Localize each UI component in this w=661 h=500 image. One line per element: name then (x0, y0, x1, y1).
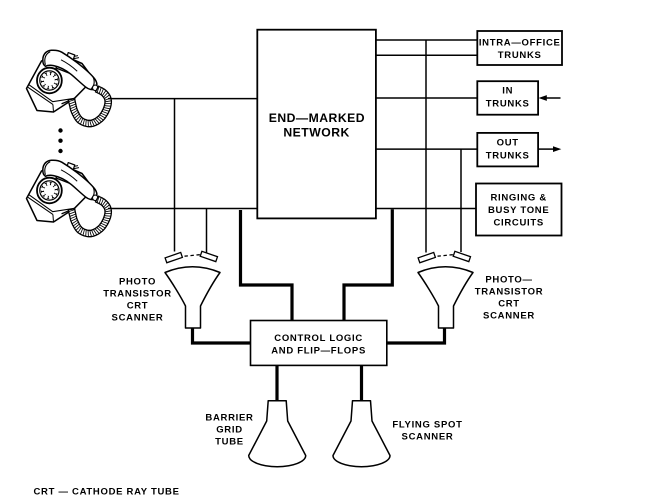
svg-text:CRT: CRT (127, 300, 149, 311)
svg-text:IN: IN (502, 85, 513, 96)
svg-text:PHOTO: PHOTO (119, 276, 156, 287)
svg-text:OUT: OUT (497, 137, 519, 148)
svg-text:GRID: GRID (216, 424, 243, 435)
svg-text:TRUNKS: TRUNKS (486, 98, 530, 109)
svg-text:FLYING SPOT: FLYING SPOT (392, 419, 462, 430)
svg-text:PHOTO—: PHOTO— (485, 274, 532, 285)
svg-text:TRUNKS: TRUNKS (498, 50, 542, 61)
svg-text:RINGING &: RINGING & (490, 192, 546, 203)
svg-text:TRUNKS: TRUNKS (486, 150, 530, 161)
svg-text:CONTROL LOGIC: CONTROL LOGIC (274, 333, 363, 344)
svg-text:INTRA—OFFICE: INTRA—OFFICE (479, 37, 561, 48)
svg-text:END—MARKED: END—MARKED (269, 111, 365, 125)
svg-text:AND FLIP—FLOPS: AND FLIP—FLOPS (271, 345, 366, 356)
svg-text:CRT — CATHODE RAY TUBE: CRT — CATHODE RAY TUBE (34, 487, 180, 498)
svg-text:NETWORK: NETWORK (283, 125, 349, 139)
svg-text:TRANSISTOR: TRANSISTOR (475, 286, 544, 297)
svg-text:CIRCUITS: CIRCUITS (493, 217, 543, 228)
svg-text:BUSY TONE: BUSY TONE (488, 205, 549, 216)
svg-text:SCANNER: SCANNER (112, 312, 164, 323)
svg-text:CRT: CRT (498, 298, 520, 309)
svg-text:TRANSISTOR: TRANSISTOR (103, 288, 172, 299)
svg-text:BARRIER: BARRIER (205, 412, 253, 423)
svg-text:TUBE: TUBE (215, 436, 244, 447)
svg-text:SCANNER: SCANNER (402, 431, 454, 442)
svg-text:SCANNER: SCANNER (483, 310, 535, 321)
